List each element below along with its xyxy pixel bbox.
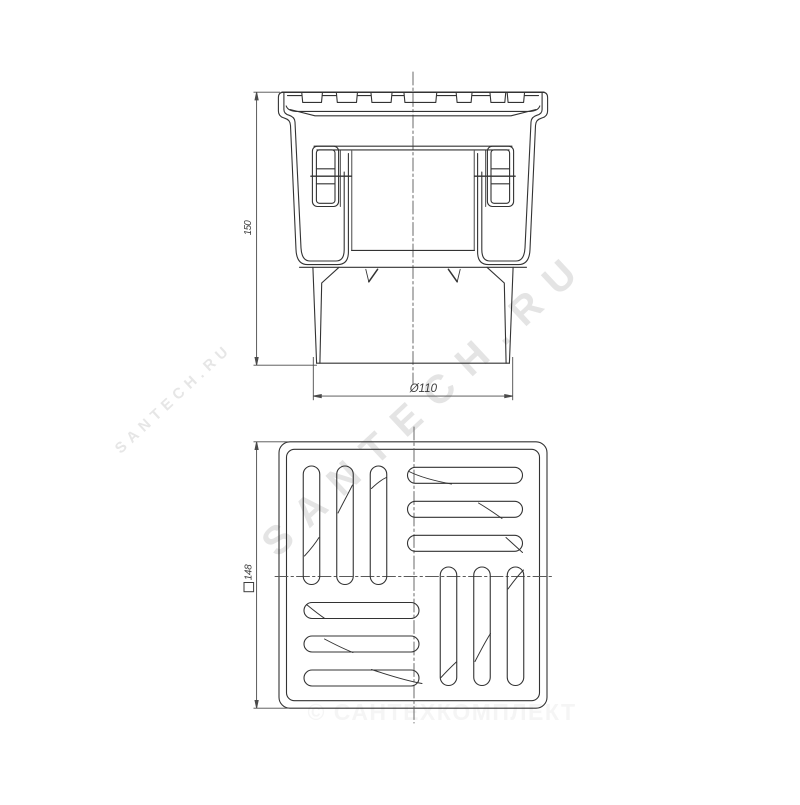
svg-text:148: 148 <box>243 564 254 580</box>
svg-text:© САНТЕХКОМПЛЕКТ: © САНТЕХКОМПЛЕКТ <box>307 699 576 725</box>
svg-text:Ø110: Ø110 <box>409 383 438 395</box>
svg-text:150: 150 <box>243 220 254 236</box>
